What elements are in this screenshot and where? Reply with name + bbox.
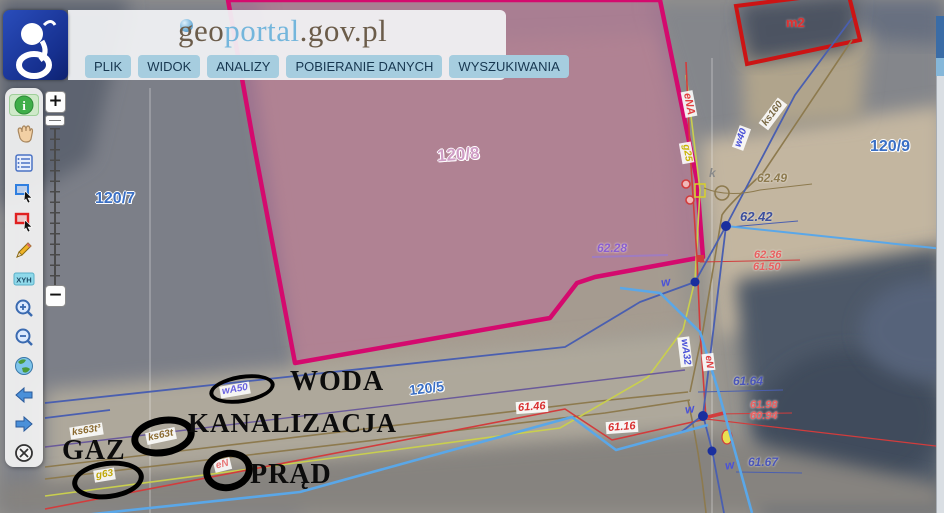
circle-x-icon xyxy=(13,442,35,464)
select-rect-red-icon xyxy=(13,210,35,232)
menu-widok[interactable]: WIDOK xyxy=(138,55,200,78)
select-rect-blue-icon xyxy=(13,181,35,203)
tool-next-view[interactable] xyxy=(9,413,39,435)
sewer-letter-k: k xyxy=(707,167,718,179)
elevation-61-46: 61.46 xyxy=(516,400,548,414)
elevation-61-50: 61.50 xyxy=(753,261,781,273)
zoom-slider-handle[interactable] xyxy=(45,115,65,126)
annotation-kanalizacja: KANALIZACJA xyxy=(188,408,397,439)
magnifier-minus-icon xyxy=(13,326,35,348)
elevation-60-94: 60.94 xyxy=(750,410,778,422)
geoportal-app-window: 120/7 120/8 120/9 120/5 m2 wA50 ks63t³ k… xyxy=(0,0,944,513)
elevation-62-28: 62.28 xyxy=(597,241,627,255)
geoportal-logo[interactable] xyxy=(3,10,68,80)
annotation-gaz: GAZ xyxy=(62,435,126,467)
building-label-m2: m2 xyxy=(786,15,805,30)
site-title-geo: geo xyxy=(178,13,224,48)
parcel-label-120-7: 120/7 xyxy=(95,190,135,208)
tool-select-blue[interactable] xyxy=(9,181,39,203)
tool-move-map[interactable] xyxy=(9,442,39,464)
identify-i-glyph: i xyxy=(22,98,26,113)
water-letter-w3: w xyxy=(722,458,737,472)
elevation-61-67: 61.67 xyxy=(748,455,778,469)
tool-pan[interactable] xyxy=(9,123,39,145)
pencil-icon xyxy=(13,239,35,261)
menu-wyszukiwania[interactable]: WYSZUKIWANIA xyxy=(449,55,568,78)
globe-icon xyxy=(13,355,35,377)
tool-zoom-out[interactable] xyxy=(9,326,39,348)
menu-analizy[interactable]: ANALIZY xyxy=(207,55,279,78)
elevation-62-49: 62.49 xyxy=(757,171,787,185)
zoom-out-button[interactable]: − xyxy=(45,285,66,307)
tool-attributes[interactable] xyxy=(9,152,39,174)
elevation-61-64: 61.64 xyxy=(733,374,763,388)
xyh-glyph: XYH xyxy=(16,276,31,285)
tool-coordinates[interactable]: XYH xyxy=(9,268,39,290)
tool-select-red[interactable] xyxy=(9,210,39,232)
tool-draw[interactable] xyxy=(9,239,39,261)
right-panel-strip xyxy=(936,76,944,513)
arrow-right-icon xyxy=(13,413,35,435)
elevation-62-42: 62.42 xyxy=(740,209,773,224)
magnifier-plus-icon xyxy=(13,297,35,319)
water-letter-w1: w xyxy=(658,275,673,289)
main-menu: PLIK WIDOK ANALIZY POBIERANIE DANYCH WYS… xyxy=(85,55,569,78)
tool-identify[interactable]: i xyxy=(9,94,39,116)
elevation-61-16: 61.16 xyxy=(606,420,638,434)
site-title-portal: portal xyxy=(224,13,299,48)
map-toolbar: i XYH xyxy=(5,88,43,467)
parcel-label-120-8: 120/8 xyxy=(436,144,480,167)
logo-g-icon xyxy=(3,10,68,80)
elevation-62-36: 62.36 xyxy=(754,249,782,261)
menu-plik[interactable]: PLIK xyxy=(85,55,131,78)
right-panel-handle-light[interactable] xyxy=(936,58,944,76)
menu-pobieranie-danych[interactable]: POBIERANIE DANYCH xyxy=(286,55,442,78)
utility-label-en-riser: eN xyxy=(701,353,715,371)
parcel-label-120-9: 120/9 xyxy=(870,138,910,156)
zoom-slider-ticks xyxy=(50,128,60,285)
tool-previous-view[interactable] xyxy=(9,384,39,406)
tool-full-extent[interactable] xyxy=(9,355,39,377)
tool-zoom-in[interactable] xyxy=(9,297,39,319)
arrow-left-icon xyxy=(13,384,35,406)
hand-icon xyxy=(13,123,35,145)
table-icon xyxy=(13,152,35,174)
site-title: geoportal.gov.pl xyxy=(178,13,387,49)
water-letter-w2: w xyxy=(682,402,697,416)
site-title-suffix: .gov.pl xyxy=(300,13,388,48)
zoom-in-button[interactable]: + xyxy=(45,91,66,113)
right-panel-handle[interactable] xyxy=(936,16,944,58)
annotation-woda: WODA xyxy=(290,366,384,398)
annotation-prad: PRĄD xyxy=(250,459,332,491)
